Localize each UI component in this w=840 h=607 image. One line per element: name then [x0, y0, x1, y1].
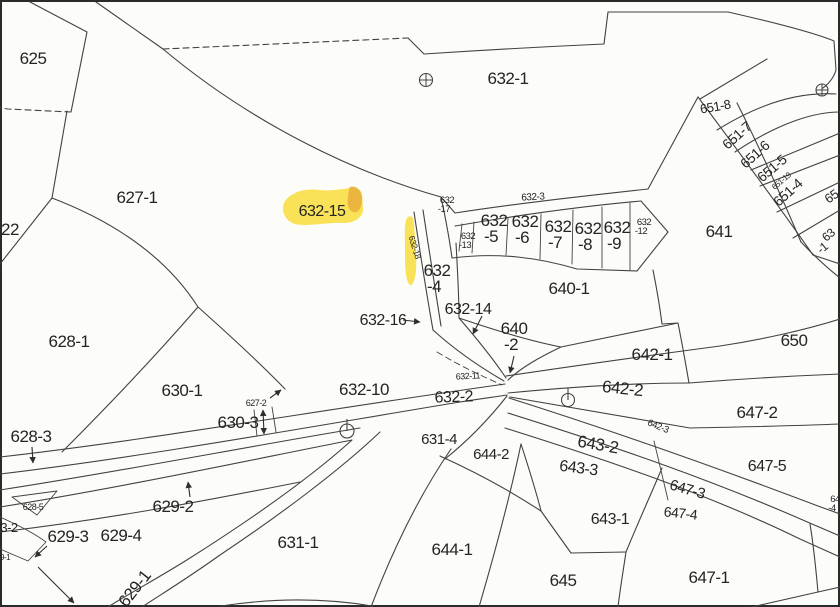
parcel-label-632-11: 632-11	[455, 370, 480, 381]
parcel-label-3-2-edge: 3-2	[0, 520, 18, 535]
survey-marker-circle-stem	[562, 389, 575, 407]
parcel-label-632-6: 632-6	[512, 212, 539, 247]
parcel-label-647-4: 647-4	[663, 503, 699, 522]
leader-arrow-627-2-span	[263, 410, 264, 434]
parcel-label-629-4: 629-4	[101, 526, 142, 545]
parcel-labels: 62522627-1632-1628-1630-1630-3628-3629-3…	[0, 49, 840, 607]
parcel-label-631-1: 631-1	[278, 533, 319, 552]
parcel-label-632-15: 632-15	[299, 203, 346, 220]
parcel-label-632-17: 632-17	[438, 195, 455, 215]
parcel-label-647-5: 647-5	[748, 458, 787, 475]
parcel-label-627-1: 627-1	[117, 188, 158, 207]
parcel-label-632-10: 632-10	[339, 380, 389, 399]
parcel-label-647-1: 647-1	[689, 568, 730, 587]
parcel-label-643-3: 643-3	[558, 458, 599, 480]
parcel-label-632-16: 632-16	[360, 312, 407, 329]
parcel-label-650: 650	[781, 331, 808, 350]
parcel-label-628-5: 628-5	[23, 502, 44, 512]
parcel-label-642-1: 642-1	[632, 345, 673, 364]
parcel-label-631-4: 631-4	[421, 431, 457, 448]
parcel-label-632-5: 632-5	[481, 211, 508, 246]
parcel-label-629-2: 629-2	[153, 497, 194, 516]
parcel-label-641: 641	[706, 222, 733, 241]
parcel-label-629-3: 629-3	[48, 527, 89, 546]
parcel-label-651-8: 651-8	[699, 96, 732, 116]
survey-marker-circle-plus	[816, 84, 828, 96]
cadastral-map: 62522627-1632-1628-1630-1630-3628-3629-3…	[0, 0, 840, 607]
parcel-label-632-7: 632-7	[545, 217, 572, 252]
parcel-boundaries	[0, 2, 840, 607]
parcel-label-64-4-edge: 64-4	[828, 494, 840, 514]
parcel-label-630-3: 630-3	[218, 413, 259, 432]
parcel-label-642-3: 642-3	[646, 417, 671, 435]
parcel-label-9-1-edge: 9-1	[0, 553, 11, 562]
leader-arrow-628-3	[32, 447, 33, 463]
parcel-label-645: 645	[550, 571, 577, 590]
cadastral-map-canvas: 62522627-1632-1628-1630-1630-3628-3629-3…	[0, 0, 840, 607]
parcel-label-647-3: 647-3	[668, 477, 707, 503]
leader-arrow-629-lower	[38, 567, 74, 603]
parcel-label-632-8: 632-8	[575, 219, 602, 254]
parcel-label-643-1: 643-1	[591, 511, 630, 528]
parcel-label-632-1: 632-1	[488, 69, 529, 88]
parcel-label-640-2: 640-2	[501, 319, 528, 354]
parcel-label-625: 625	[20, 49, 47, 68]
parcel-label-632-12: 632-12	[635, 217, 652, 237]
parcel-label-630-1: 630-1	[162, 381, 203, 400]
parcel-label-632-4: 632-4	[424, 261, 451, 296]
leader-arrow-640-2	[510, 356, 514, 373]
parcel-label-632-14: 632-14	[445, 301, 492, 318]
parcel-label-642-2: 642-2	[601, 377, 644, 400]
parcel-label-628-1: 628-1	[49, 332, 90, 351]
leader-arrow-629-2	[188, 482, 190, 497]
parcel-label-632-2: 632-2	[434, 388, 474, 406]
parcel-label-627-2: 627-2	[246, 398, 267, 408]
parcel-label-632-13: 632-13	[459, 231, 476, 251]
parcel-label-640-1: 640-1	[549, 279, 590, 298]
leader-arrow-627-2	[270, 390, 281, 398]
parcel-label-647-2: 647-2	[737, 403, 778, 422]
highlight-marks	[283, 187, 416, 286]
parcel-label-632-9: 632-9	[604, 218, 631, 253]
parcel-label-644-1: 644-1	[432, 540, 473, 559]
parcel-label-622: 22	[1, 220, 19, 239]
parcel-label-629-1: 629-1	[115, 567, 155, 607]
parcel-label-644-2: 644-2	[473, 446, 509, 463]
parcel-label-628-3: 628-3	[11, 427, 52, 446]
parcel-label-632-3: 632-3	[521, 191, 546, 203]
survey-marker-circle-plus	[420, 74, 433, 87]
